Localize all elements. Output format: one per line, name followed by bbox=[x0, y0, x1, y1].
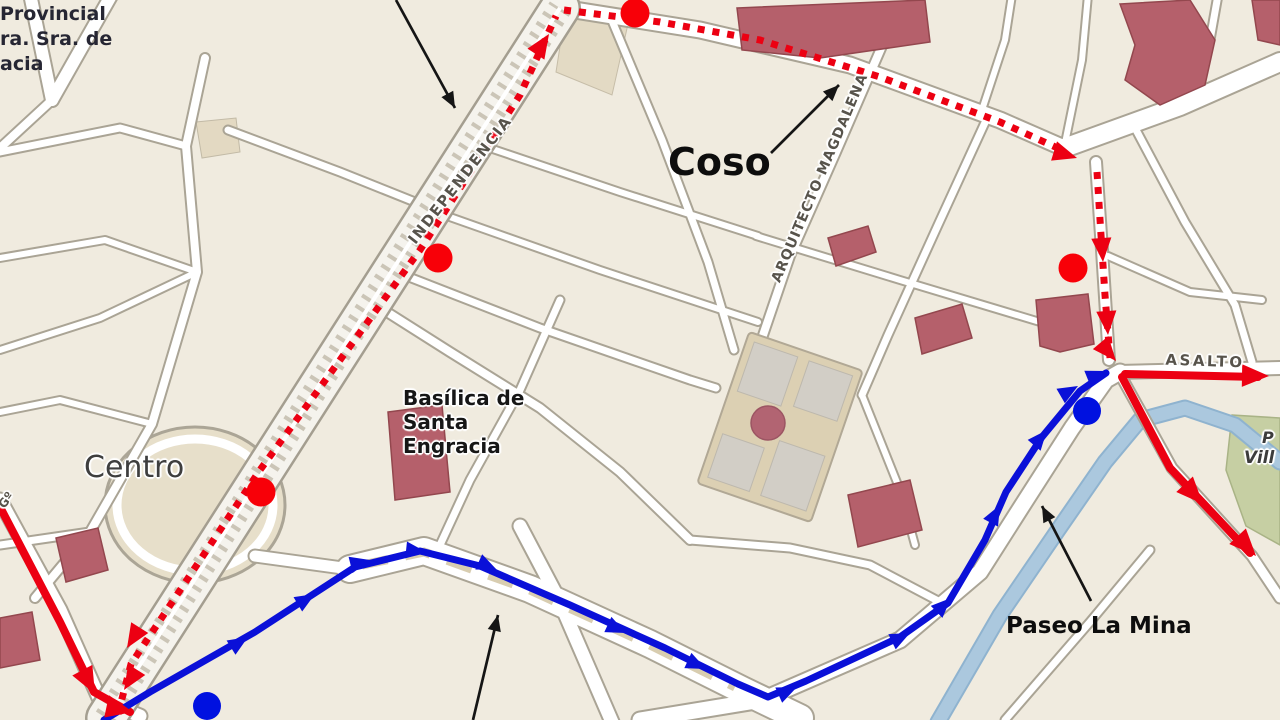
map-base bbox=[0, 0, 1280, 720]
plaza-monument bbox=[751, 406, 785, 440]
blue-stop-dot bbox=[193, 692, 221, 720]
red-stop-dot bbox=[247, 478, 276, 507]
red-stop-dot bbox=[1059, 254, 1088, 283]
map-canvas bbox=[0, 0, 1280, 720]
red-stop-dot bbox=[424, 244, 453, 273]
blue-stop-dot bbox=[1073, 397, 1101, 425]
route-red-solid bbox=[1125, 374, 1258, 377]
map-screenshot: Provincial ra. Sra. de acia Centro Coso … bbox=[0, 0, 1280, 720]
